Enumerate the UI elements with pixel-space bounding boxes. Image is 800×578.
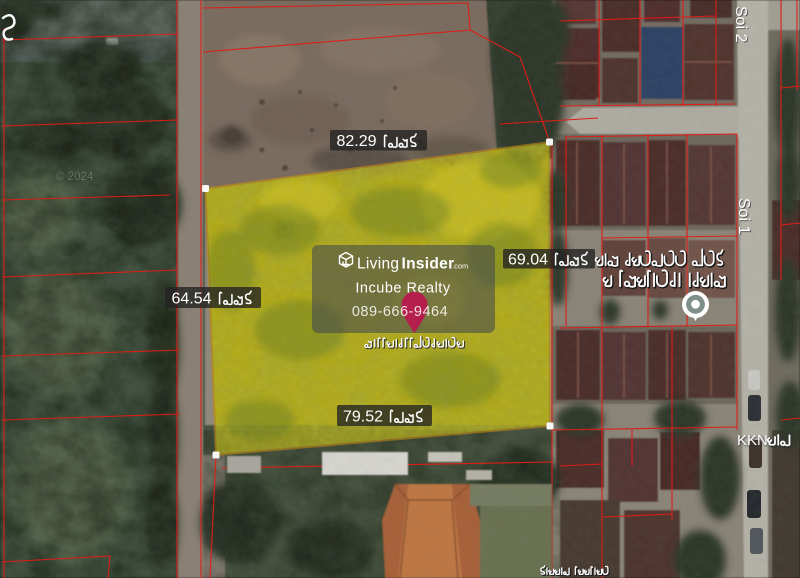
svg-text:Living: Living [357,256,399,273]
svg-text:089-666-9464: 089-666-9464 [352,304,448,320]
svg-text:Incube Realty: Incube Realty [355,281,450,297]
svg-text:64.54: 64.54 [172,290,212,307]
svg-text:.com: .com [452,262,468,271]
svg-text:79.52: 79.52 [343,408,383,425]
svg-text:© 2024: © 2024 [56,171,94,183]
svg-text:Soi 1: Soi 1 [735,198,752,235]
svg-text:KKN: KKN [737,432,768,449]
svg-text:Insider: Insider [402,256,455,273]
svg-text:82.29: 82.29 [337,133,377,150]
svg-text:69.04: 69.04 [508,252,548,269]
svg-text:Soi 2: Soi 2 [732,6,749,43]
